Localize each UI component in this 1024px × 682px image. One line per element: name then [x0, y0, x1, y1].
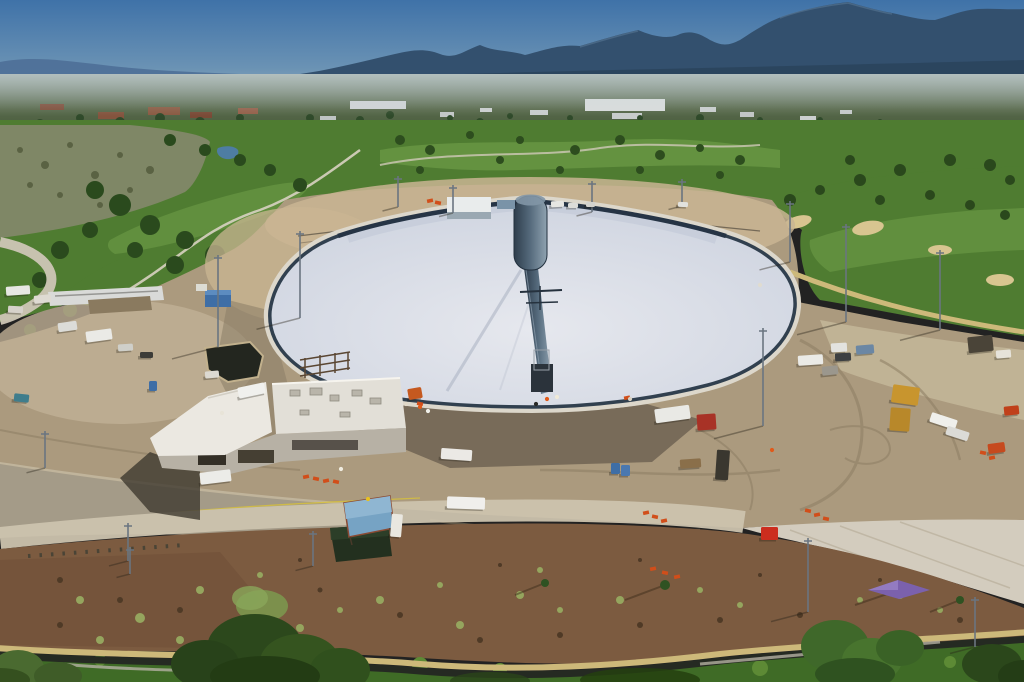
white-suv	[831, 343, 847, 353]
pickup	[586, 202, 595, 207]
valley-haze	[0, 74, 1024, 116]
aerial-photo	[0, 0, 1024, 682]
vegetation-dot	[17, 147, 23, 153]
vegetation-dot	[57, 622, 63, 628]
vegetation-dot	[456, 621, 464, 629]
vegetation-dot	[51, 241, 69, 259]
vegetation-dot	[82, 222, 98, 238]
vegetation-dot	[397, 612, 403, 618]
vegetation-dot	[496, 156, 504, 164]
sand-bunker	[986, 274, 1014, 286]
worker	[418, 405, 422, 409]
vegetation-dot	[196, 586, 204, 594]
vegetation-dot	[752, 660, 768, 676]
dark-excavator	[967, 335, 994, 354]
red-container	[761, 527, 778, 540]
dark-car	[140, 352, 153, 358]
vegetation-dot	[76, 596, 84, 604]
vegetation-dot	[140, 215, 160, 235]
pickup	[118, 343, 133, 351]
white-truck	[8, 306, 23, 314]
service-truck	[996, 349, 1012, 358]
vegetation-dot	[376, 596, 384, 604]
telehandler	[889, 407, 911, 431]
vegetation-dot	[944, 154, 956, 166]
vegetation-dot	[466, 131, 474, 139]
worker	[404, 402, 408, 406]
worker	[758, 283, 762, 287]
vegetation-dot	[298, 558, 302, 562]
vegetation-dot	[164, 134, 176, 146]
vegetation-dot	[984, 159, 996, 171]
vegetation-dot	[737, 602, 743, 608]
vegetation-dot	[637, 622, 643, 628]
vegetation-dot	[1000, 210, 1010, 220]
vegetation-dot	[944, 656, 956, 668]
white-truck	[568, 203, 578, 208]
porta-potty	[611, 463, 620, 474]
vegetation-dot	[878, 578, 882, 582]
gray-pickup	[822, 365, 839, 376]
vegetation-dot	[57, 192, 63, 198]
white-trailer	[390, 514, 403, 538]
utility-truck	[447, 496, 485, 509]
vegetation-dot	[27, 182, 33, 188]
worker	[339, 467, 343, 471]
vegetation-dot	[86, 181, 104, 199]
worker	[220, 411, 224, 415]
vegetation-dot	[957, 617, 963, 623]
pier-cylinder	[514, 196, 547, 270]
vegetation-dot	[234, 154, 246, 166]
vegetation-dot	[638, 558, 642, 562]
vegetation-dot	[616, 596, 624, 604]
worker	[555, 395, 559, 399]
vegetation-dot	[395, 135, 405, 145]
orange-container	[1004, 405, 1020, 416]
vegetation-dot	[117, 152, 123, 158]
semi-trailer	[715, 450, 730, 481]
vegetation-dot	[318, 588, 323, 593]
vegetation-dot	[117, 597, 123, 603]
vegetation-dot	[264, 164, 276, 176]
vegetation-dot	[127, 242, 143, 258]
white-pickup	[205, 370, 220, 378]
vegetation-dot	[758, 573, 762, 577]
vegetation-dot	[97, 202, 103, 208]
pier-crossbar-lower	[526, 302, 558, 303]
vegetation-dot	[845, 155, 855, 165]
white-truck	[551, 201, 564, 208]
worker	[366, 497, 370, 501]
east-wing-roof	[272, 378, 406, 434]
vegetation-dot	[697, 587, 703, 593]
vegetation-dot	[176, 231, 194, 249]
vegetation-dot	[96, 636, 104, 644]
vegetation-dot	[696, 144, 704, 152]
pier-cylinder-cap	[516, 195, 546, 206]
worker	[545, 397, 549, 401]
vegetation-dot	[498, 563, 502, 567]
pallet-stack	[680, 458, 702, 468]
pickup	[678, 202, 688, 207]
vegetation-dot	[570, 145, 580, 155]
vegetation-dot	[615, 135, 625, 145]
vegetation-dot	[516, 136, 524, 144]
dark-suv	[835, 353, 851, 362]
worker	[426, 409, 430, 413]
vegetation-dot	[146, 166, 154, 174]
vegetation-dot	[437, 582, 443, 588]
rv-trailer	[6, 285, 31, 296]
vegetation-dot	[477, 637, 483, 643]
worker	[770, 448, 774, 452]
vegetation-dot	[57, 577, 63, 583]
vegetation-dot	[735, 155, 745, 165]
vegetation-dot	[556, 166, 564, 174]
vegetation-dot	[655, 150, 665, 160]
vegetation-dot	[1005, 175, 1015, 185]
garage-opening	[238, 450, 274, 463]
vegetation-dot	[257, 572, 263, 578]
vegetation-dot	[293, 178, 307, 192]
blue-pickup	[856, 344, 875, 355]
vegetation-dot	[894, 164, 906, 176]
vegetation-dot	[176, 636, 184, 644]
vegetation-dot	[337, 607, 343, 613]
vegetation-dot	[199, 144, 211, 156]
vegetation-dot	[296, 624, 304, 632]
vegetation-dot	[177, 607, 183, 613]
excavator	[891, 384, 920, 406]
vegetation-dot	[537, 567, 543, 573]
worker	[628, 397, 632, 401]
vegetation-dot	[416, 166, 424, 174]
worker	[534, 402, 538, 406]
vegetation-dot	[135, 613, 145, 623]
vegetation-dot	[716, 171, 724, 179]
vegetation-dot	[91, 171, 99, 179]
white-van	[798, 354, 824, 366]
vegetation-dot	[854, 174, 866, 186]
porta-potty	[621, 465, 630, 476]
vegetation-dot	[875, 195, 885, 205]
window-strip	[292, 440, 358, 450]
vegetation-dot	[557, 632, 563, 638]
vegetation-dot	[67, 142, 73, 148]
vegetation-dot	[636, 166, 644, 174]
vegetation-dot	[925, 190, 935, 200]
vegetation-dot	[166, 256, 184, 274]
teal-bin	[14, 393, 30, 403]
vegetation-dot	[815, 185, 825, 195]
vegetation-dot	[425, 145, 435, 155]
vegetation-dot	[965, 200, 975, 210]
porta-potty	[149, 381, 157, 391]
vegetation-dot	[109, 194, 131, 216]
aerial-photo-stage	[0, 0, 1024, 682]
vegetation-dot	[127, 187, 133, 193]
vegetation-dot	[717, 617, 723, 623]
flatbed-truck	[441, 448, 473, 461]
red-loader	[696, 413, 716, 430]
vegetation-dot	[557, 607, 563, 613]
vegetation-dot	[41, 161, 49, 169]
